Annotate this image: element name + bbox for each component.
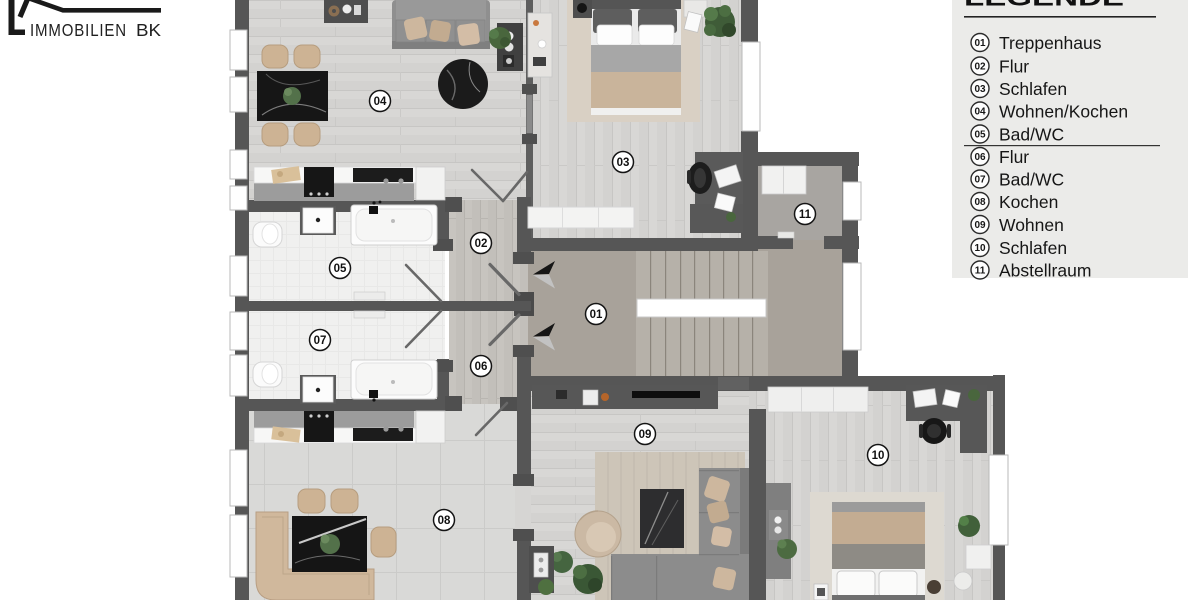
svg-text:Abstellraum: Abstellraum	[999, 261, 1091, 281]
svg-text:01: 01	[974, 38, 986, 49]
svg-text:Treppenhaus: Treppenhaus	[999, 33, 1102, 53]
svg-text:10: 10	[872, 450, 885, 462]
svg-text:Wohnen: Wohnen	[999, 215, 1064, 235]
svg-text:02: 02	[974, 62, 986, 73]
svg-text:BK: BK	[136, 20, 161, 40]
svg-text:Kochen: Kochen	[999, 192, 1058, 212]
svg-text:08: 08	[438, 515, 451, 527]
svg-text:03: 03	[974, 84, 986, 95]
svg-text:IMMOBILIEN: IMMOBILIEN	[30, 20, 127, 40]
svg-text:Schlafen: Schlafen	[999, 79, 1067, 99]
svg-text:07: 07	[314, 335, 327, 347]
svg-text:06: 06	[475, 361, 488, 373]
svg-text:02: 02	[475, 238, 488, 250]
svg-text:06: 06	[974, 152, 986, 163]
svg-text:Bad/WC: Bad/WC	[999, 170, 1064, 190]
svg-text:11: 11	[975, 266, 986, 277]
svg-text:05: 05	[974, 130, 986, 141]
svg-text:Schlafen: Schlafen	[999, 238, 1067, 258]
svg-text:04: 04	[974, 107, 986, 118]
svg-text:09: 09	[974, 220, 986, 231]
svg-text:05: 05	[334, 263, 347, 275]
svg-text:03: 03	[617, 157, 630, 169]
svg-text:08: 08	[974, 197, 986, 208]
svg-text:Flur: Flur	[999, 147, 1029, 167]
svg-text:Bad/WC: Bad/WC	[999, 125, 1064, 145]
svg-text:Wohnen/Kochen: Wohnen/Kochen	[999, 102, 1128, 122]
svg-text:LEGENDE: LEGENDE	[964, 0, 1124, 12]
svg-text:11: 11	[799, 209, 812, 221]
svg-text:01: 01	[590, 309, 603, 321]
svg-text:10: 10	[974, 243, 986, 254]
svg-text:04: 04	[374, 96, 387, 108]
svg-text:09: 09	[639, 429, 652, 441]
svg-text:07: 07	[974, 175, 986, 186]
svg-text:Flur: Flur	[999, 57, 1029, 77]
